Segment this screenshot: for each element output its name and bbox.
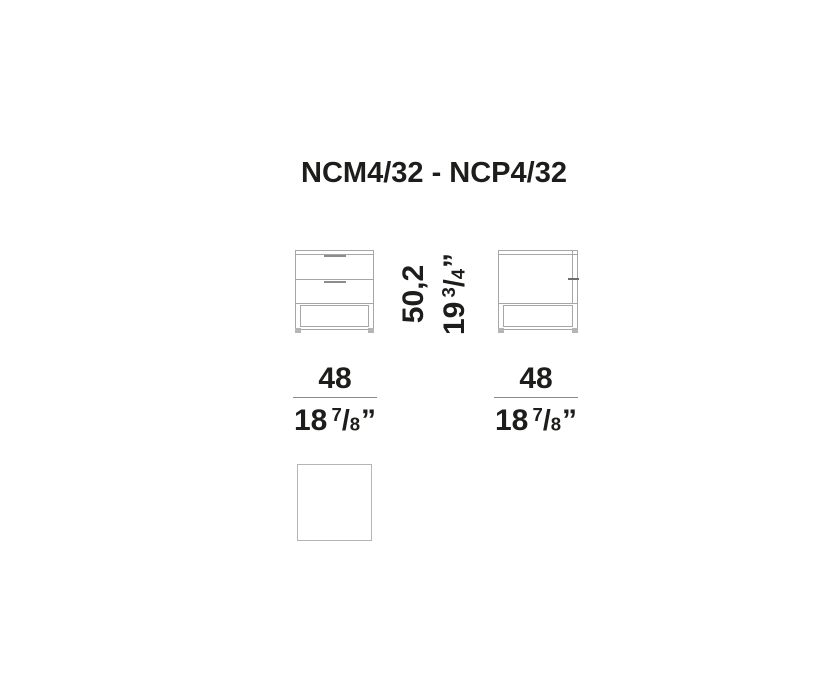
right-foot xyxy=(368,328,374,333)
base-opening xyxy=(300,305,369,327)
imperial-whole: 19 xyxy=(438,302,471,335)
top-view-drawing xyxy=(297,464,372,541)
technical-drawing-sheet: NCM4/32 - NCP4/32 50,2 193/4” 48 187/8” … xyxy=(0,0,840,679)
product-code-title: NCM4/32 - NCP4/32 xyxy=(264,158,604,188)
base-top-line xyxy=(499,303,577,304)
base-top-line xyxy=(296,303,373,304)
dimension-fraction-line xyxy=(293,397,377,398)
width-dimension-side: 48 187/8” xyxy=(494,364,578,439)
base-opening xyxy=(503,305,573,327)
imperial-whole: 18 xyxy=(294,404,327,437)
imperial-whole: 18 xyxy=(495,404,528,437)
width-imperial-value: 187/8” xyxy=(293,400,377,439)
height-dimension: 50,2 193/4” xyxy=(399,248,473,340)
width-dimension-front: 48 187/8” xyxy=(293,364,377,439)
side-view-drawing xyxy=(498,250,578,330)
width-metric-value: 48 xyxy=(494,364,578,394)
imperial-fraction: 3/4 xyxy=(438,269,471,298)
drawer-2-handle xyxy=(324,281,346,283)
imperial-fraction: 7/8 xyxy=(332,404,361,437)
drawer-divider-tick xyxy=(568,278,579,280)
width-metric-value: 48 xyxy=(293,364,377,394)
left-foot xyxy=(295,328,301,333)
inch-mark: ” xyxy=(361,404,376,437)
drawer-front-profile-line xyxy=(572,251,573,303)
inch-mark: ” xyxy=(438,253,471,268)
inch-mark: ” xyxy=(562,404,577,437)
width-imperial-value: 187/8” xyxy=(494,400,578,439)
height-imperial-value: 193/4” xyxy=(434,248,473,340)
right-foot xyxy=(572,328,578,333)
height-metric-value: 50,2 xyxy=(399,248,429,340)
left-foot xyxy=(498,328,504,333)
front-view-drawing xyxy=(295,250,374,330)
drawer-1-handle xyxy=(324,255,346,257)
drawer-divider-line xyxy=(296,279,373,280)
dimension-fraction-line xyxy=(494,397,578,398)
imperial-fraction: 7/8 xyxy=(533,404,562,437)
top-panel-line xyxy=(499,254,577,255)
